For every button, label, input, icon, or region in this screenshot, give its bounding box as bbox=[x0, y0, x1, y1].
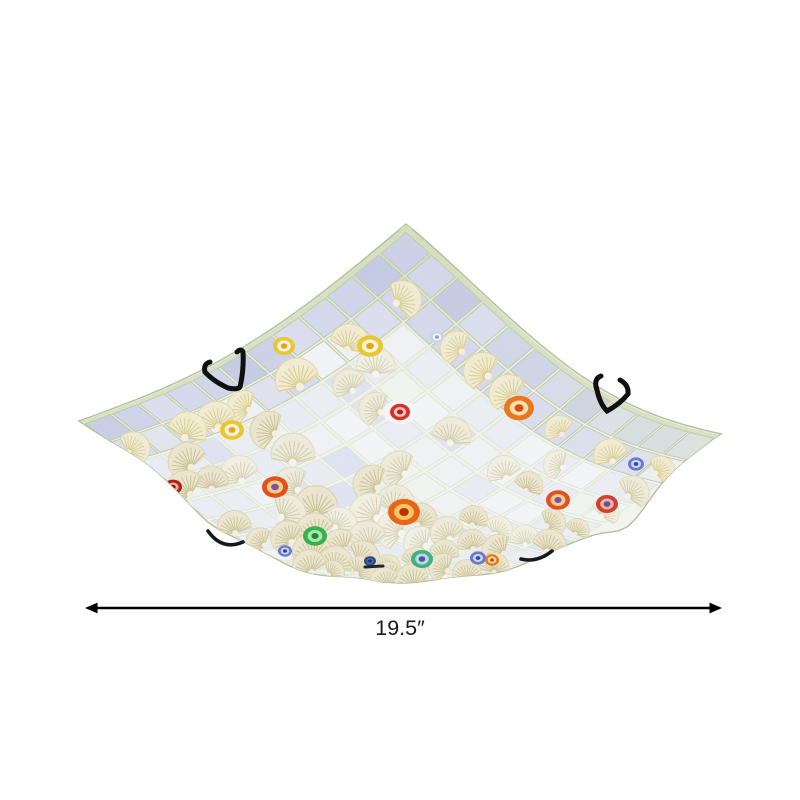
svg-text:19.5″: 19.5″ bbox=[375, 616, 425, 640]
